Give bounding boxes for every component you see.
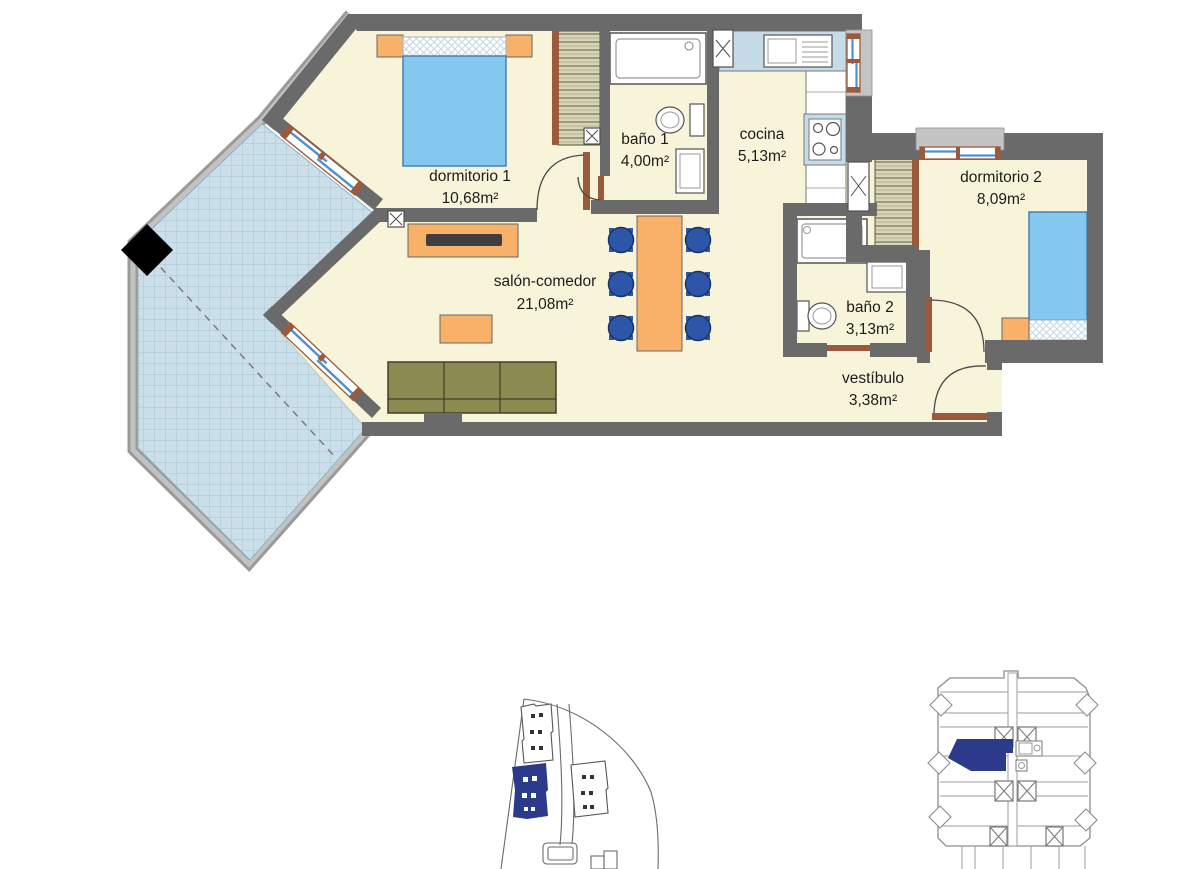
wall-bano1-west-stub [600, 145, 610, 176]
area-vestibulo: 3,38m² [849, 392, 897, 409]
label-bano-2: baño 2 [846, 299, 893, 316]
wall-west-wardrobe2 [846, 205, 862, 262]
area-dormitorio-1: 10,68m² [442, 190, 499, 207]
site-building-outline-a [521, 704, 553, 763]
wall-bano2-west [783, 203, 797, 357]
nightstand-left [377, 35, 403, 57]
nightstand-right [506, 35, 532, 57]
column-salon-corner [388, 211, 404, 227]
wall-entry-stub-top [987, 363, 1002, 370]
bed-double [403, 56, 506, 166]
column-wardrobe1 [584, 128, 600, 144]
wall-sofa-bump [424, 414, 462, 423]
wardrobe-2-sliding-door [912, 158, 919, 250]
wall-bano2-east [906, 253, 918, 357]
stove [804, 114, 846, 165]
column-kitchen [713, 30, 733, 67]
bed-double-pillow [403, 37, 506, 56]
site-building-highlighted [512, 763, 548, 819]
dining-chair [609, 272, 634, 297]
door-bano2 [827, 345, 870, 351]
site-plan [501, 699, 658, 869]
dining-chair [686, 228, 711, 253]
site-building-outline-c [571, 761, 608, 817]
sofa [388, 362, 556, 413]
wall-bottom [362, 422, 1002, 436]
wall-top [348, 14, 862, 31]
wardrobe-2 [875, 158, 913, 250]
wall-bano1-bottom [591, 200, 719, 214]
toilet-2 [797, 301, 836, 331]
site-road [557, 704, 562, 845]
window-kitchen [846, 30, 872, 96]
wardrobe-1-sliding-door [552, 31, 559, 145]
dining-chair [686, 272, 711, 297]
label-dormitorio-1: dormitorio 1 [429, 168, 511, 185]
floorplan-svg: dormitorio 1 10,68m² baño 1 4,00m² cocin… [0, 0, 1200, 869]
nightstand-dorm2 [1002, 318, 1029, 342]
bathtub-1 [610, 33, 706, 84]
area-dormitorio-2: 8,09m² [977, 191, 1025, 208]
site-structure [604, 851, 617, 869]
coffee-table [440, 315, 492, 343]
wall-dorm2-bottom [985, 340, 1103, 363]
wall-under-wardrobe2 [862, 245, 918, 262]
area-salon-comedor: 21,08m² [517, 296, 574, 313]
dining-table [637, 216, 682, 351]
area-bano-2: 3,13m² [846, 321, 894, 338]
bed-single-pillow [1029, 320, 1087, 340]
bed-single [1029, 212, 1087, 320]
area-bano-1: 4,00m² [621, 153, 669, 170]
area-cocina: 5,13m² [738, 148, 786, 165]
wall-wardrobe1-bano1 [600, 31, 610, 145]
dining-chair [609, 228, 634, 253]
wall-dorm2-east [1087, 158, 1103, 355]
dining-chair [686, 316, 711, 341]
label-bano-1: baño 1 [621, 131, 668, 148]
label-dormitorio-2: dormitorio 2 [960, 169, 1042, 186]
site-structure [591, 856, 604, 869]
keyplan-lower-walls [962, 846, 1085, 869]
sink-1 [676, 149, 704, 193]
wall-bano2-bottom-left [783, 343, 827, 357]
window-dormitorio2 [916, 128, 1004, 159]
dining-chair [609, 316, 634, 341]
label-cocina: cocina [740, 126, 785, 143]
sink-2 [867, 262, 907, 292]
label-vestibulo: vestíbulo [842, 370, 904, 387]
label-salon-comedor: salón-comedor [494, 273, 597, 290]
tv [426, 234, 502, 246]
column-vestibulo [848, 162, 869, 211]
building-key-plan [928, 671, 1098, 869]
floorplan-page: dormitorio 1 10,68m² baño 1 4,00m² cocin… [0, 0, 1200, 869]
site-pool-inner [548, 847, 573, 860]
